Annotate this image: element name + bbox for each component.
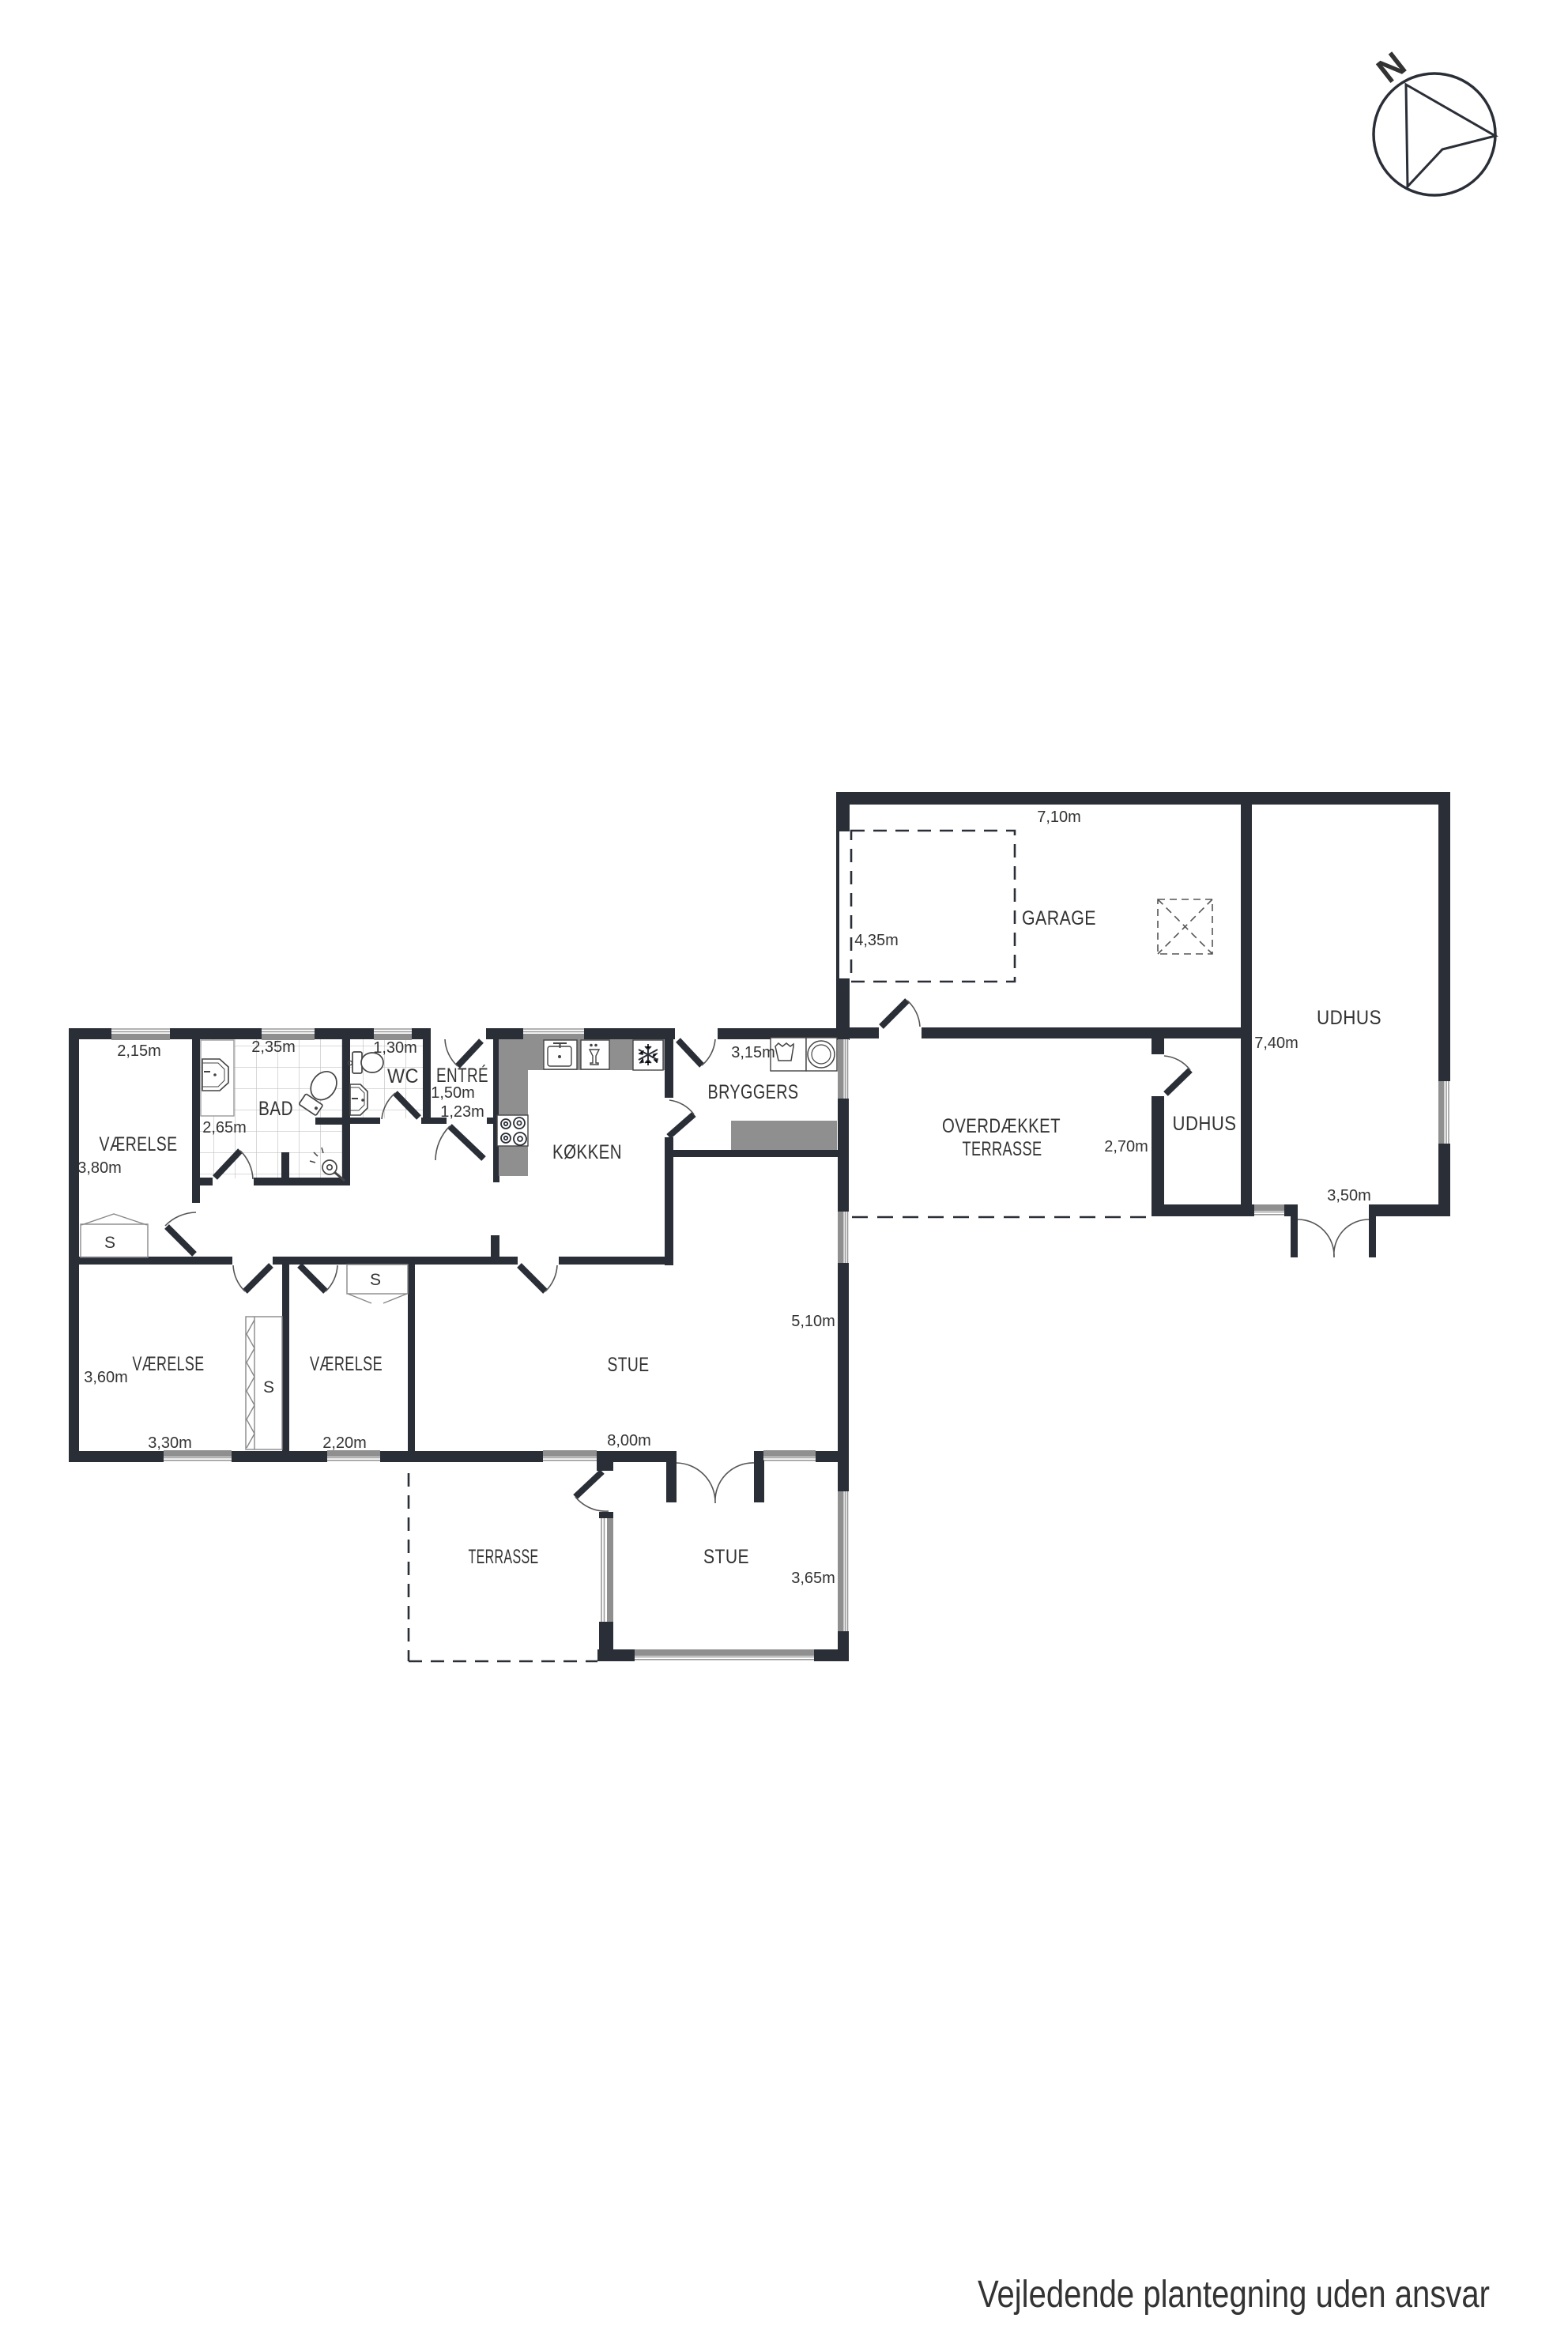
svg-text:S: S <box>370 1271 381 1289</box>
svg-text:4,35m: 4,35m <box>854 932 899 949</box>
svg-text:7,40m: 7,40m <box>1254 1035 1298 1052</box>
svg-text:3,65m: 3,65m <box>791 1570 835 1587</box>
svg-text:3,30m: 3,30m <box>148 1434 192 1452</box>
svg-text:5,10m: 5,10m <box>791 1313 835 1330</box>
svg-text:VÆRELSE: VÆRELSE <box>133 1353 205 1375</box>
svg-text:VÆRELSE: VÆRELSE <box>100 1133 178 1155</box>
svg-text:3,60m: 3,60m <box>84 1369 128 1386</box>
svg-text:2,15m: 2,15m <box>117 1042 161 1060</box>
svg-text:ENTRÉ: ENTRÉ <box>436 1064 488 1087</box>
svg-text:GARAGE: GARAGE <box>1022 907 1096 929</box>
svg-text:Vejledende plantegning uden an: Vejledende plantegning uden ansvar <box>978 2274 1490 2316</box>
svg-text:UDHUS: UDHUS <box>1317 1007 1381 1029</box>
svg-text:OVERDÆKKET: OVERDÆKKET <box>942 1115 1061 1137</box>
svg-text:STUE: STUE <box>608 1354 650 1376</box>
svg-text:STUE: STUE <box>703 1546 749 1568</box>
svg-text:2,20m: 2,20m <box>322 1434 367 1452</box>
svg-text:VÆRELSE: VÆRELSE <box>310 1353 383 1375</box>
svg-text:WC: WC <box>387 1065 419 1087</box>
svg-text:TERRASSE: TERRASSE <box>963 1138 1042 1160</box>
svg-text:1,50m: 1,50m <box>431 1084 475 1102</box>
svg-text:1,23m: 1,23m <box>440 1103 484 1121</box>
svg-text:2,70m: 2,70m <box>1104 1138 1148 1155</box>
svg-text:1,30m: 1,30m <box>373 1039 417 1057</box>
svg-text:S: S <box>104 1234 115 1252</box>
svg-text:KØKKEN: KØKKEN <box>552 1141 622 1163</box>
svg-text:2,35m: 2,35m <box>251 1038 296 1056</box>
svg-text:TERRASSE: TERRASSE <box>469 1546 539 1568</box>
svg-text:3,50m: 3,50m <box>1327 1187 1371 1204</box>
svg-text:S: S <box>263 1378 274 1396</box>
svg-text:7,10m: 7,10m <box>1037 808 1081 826</box>
svg-text:BRYGGERS: BRYGGERS <box>708 1081 799 1103</box>
svg-text:BAD: BAD <box>258 1098 293 1120</box>
svg-text:3,80m: 3,80m <box>77 1159 122 1177</box>
svg-text:3,15m: 3,15m <box>731 1044 775 1061</box>
svg-text:8,00m: 8,00m <box>607 1432 651 1449</box>
svg-text:UDHUS: UDHUS <box>1173 1113 1237 1135</box>
svg-text:2,65m: 2,65m <box>202 1119 247 1136</box>
